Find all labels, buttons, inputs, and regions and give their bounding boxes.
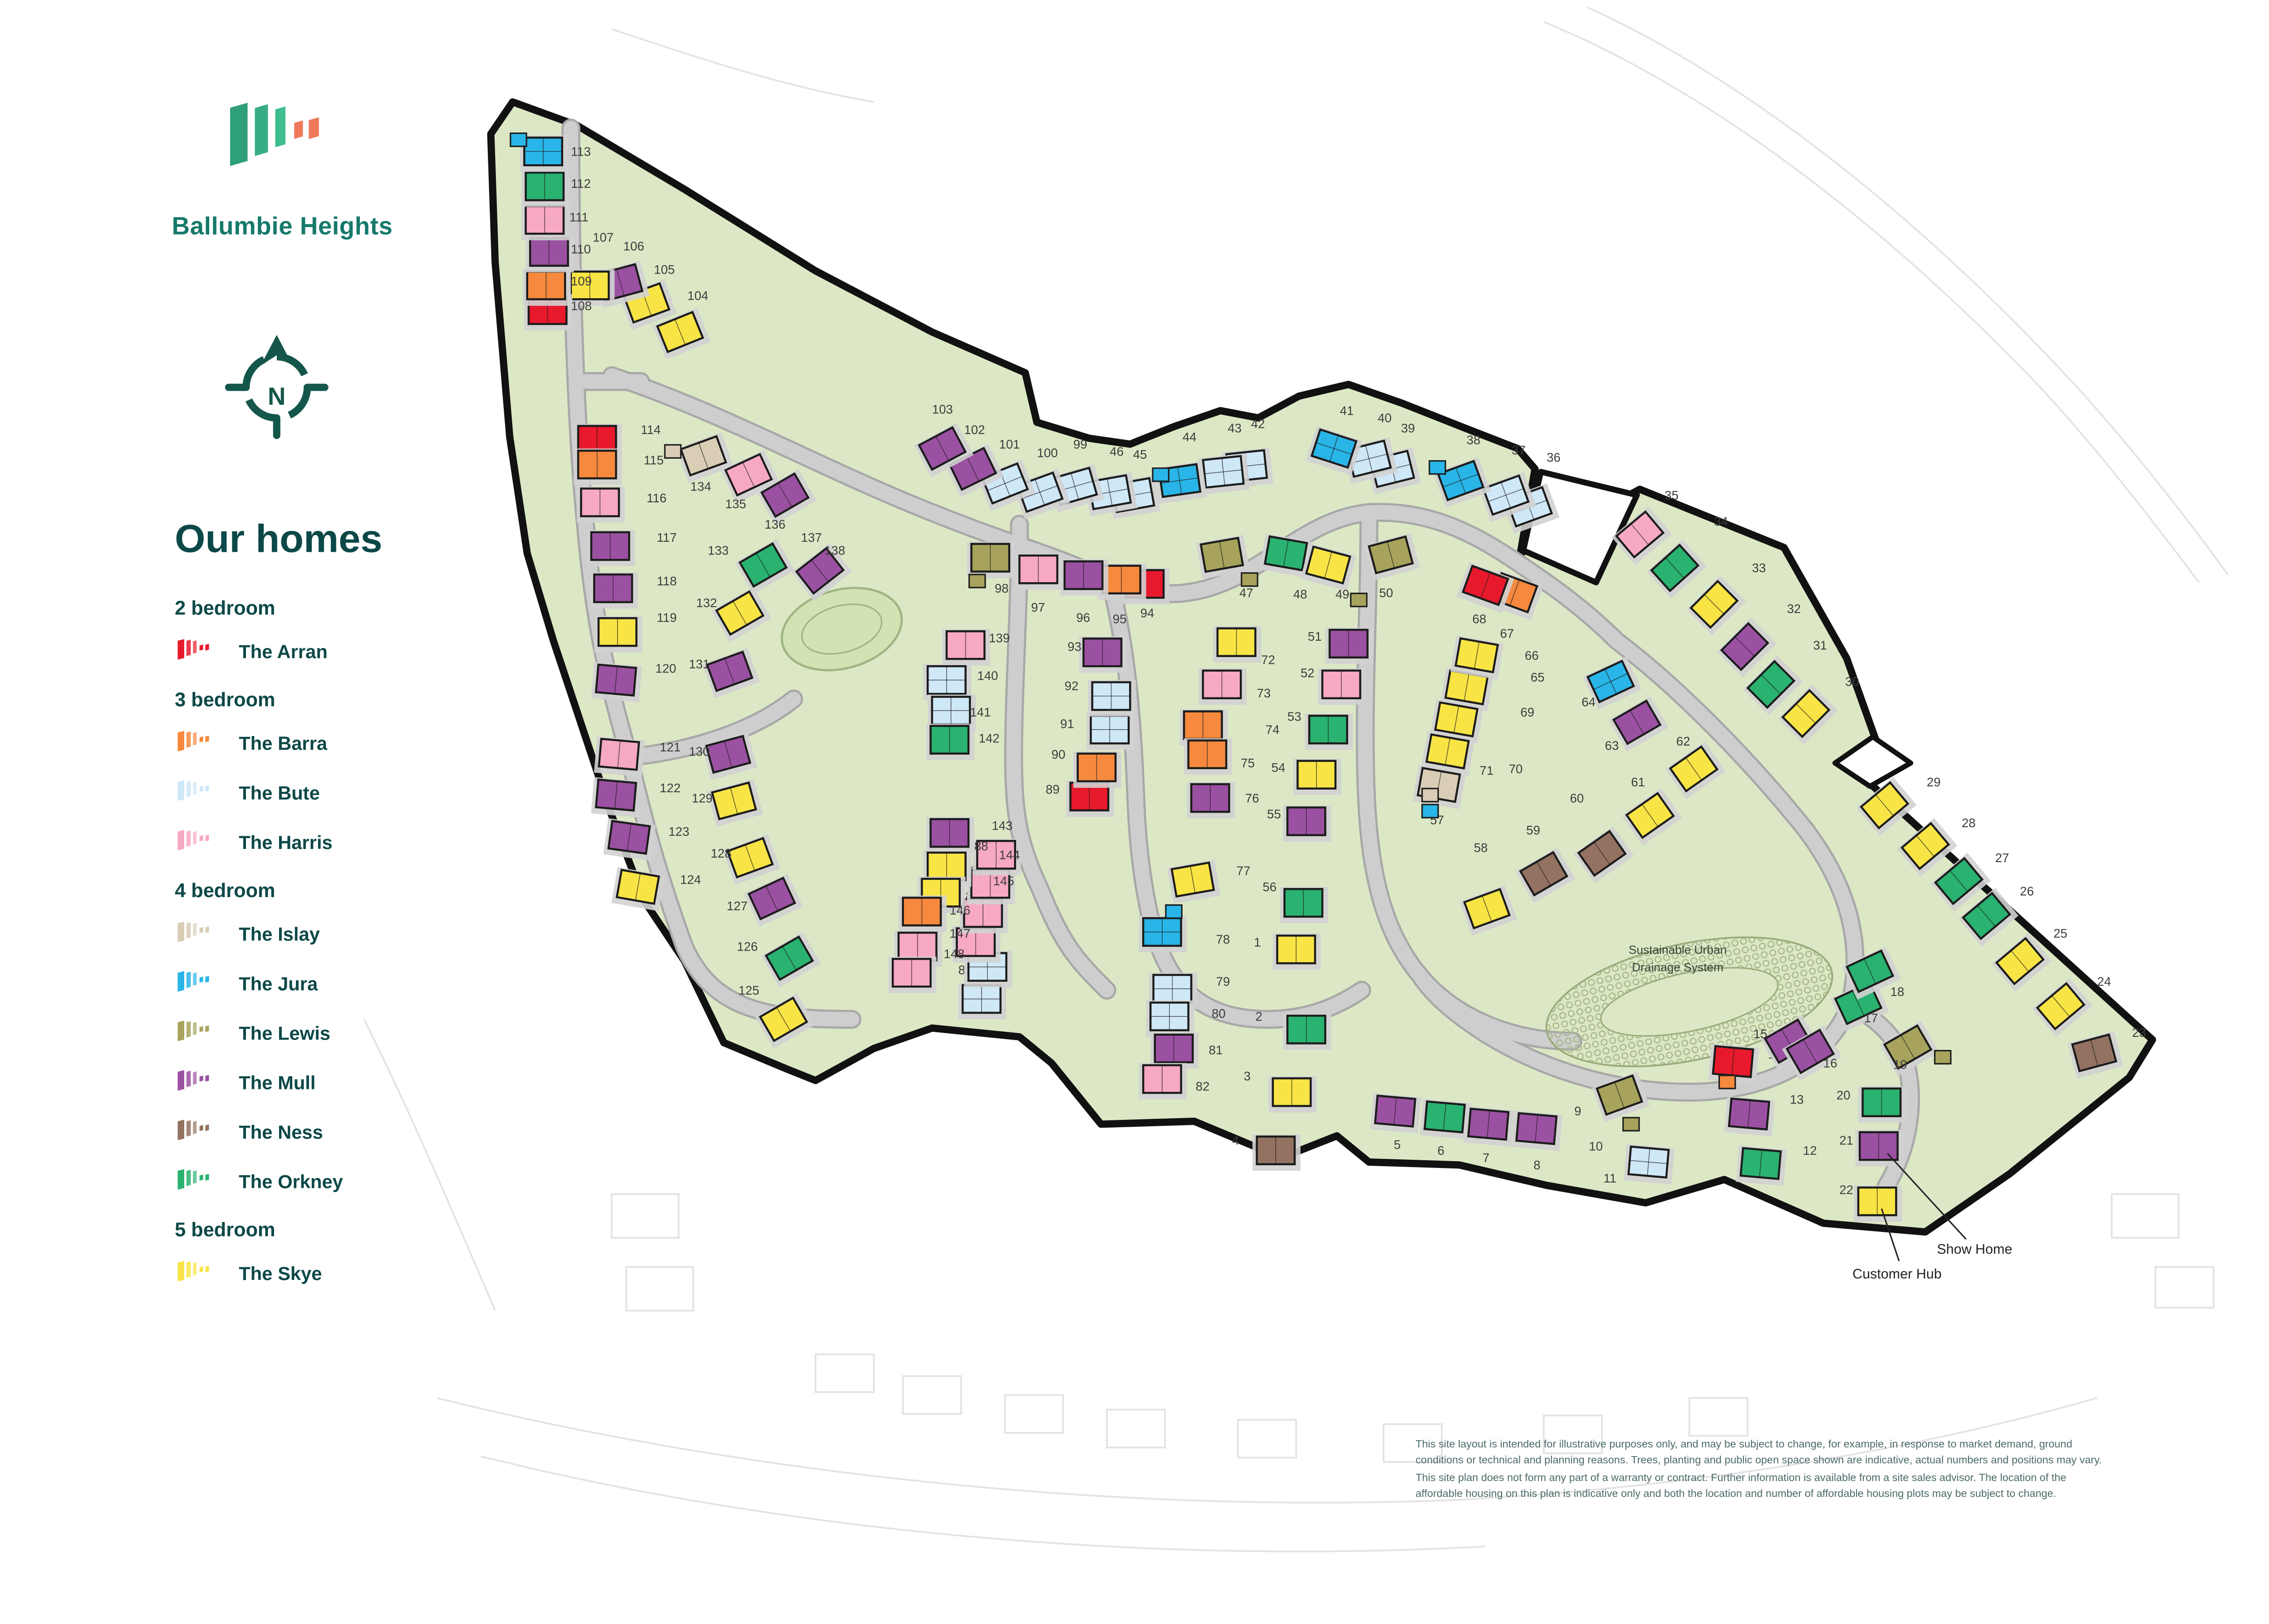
plot-number-4: 4 (1232, 1133, 1239, 1147)
home-type-label: The Orkney (239, 1170, 343, 1192)
plot-number-24: 24 (2097, 975, 2111, 989)
plot-number-145: 145 (993, 874, 1014, 888)
plot-number-78: 78 (1216, 932, 1230, 947)
plot-number-97: 97 (1031, 600, 1045, 614)
plot-number-147: 147 (949, 927, 970, 941)
plot-number-53: 53 (1287, 710, 1301, 724)
site-plan-page: 1234567891011121314151617181920212223242… (0, 0, 2269, 1624)
plot-number-115: 115 (643, 453, 663, 467)
plot-number-25: 25 (2053, 927, 2068, 941)
plot-number-110: 110 (571, 242, 591, 256)
plot-number-9: 9 (1574, 1104, 1581, 1118)
plot-number-90: 90 (1051, 747, 1066, 761)
plot-10[interactable]: 10 (1589, 1139, 1603, 1153)
plot-number-45: 45 (1133, 447, 1147, 461)
plot-number-48: 48 (1293, 587, 1307, 601)
home-type-label: The Islay (239, 922, 320, 944)
plot-number-120: 120 (655, 662, 676, 676)
plot-number-79: 79 (1216, 975, 1230, 989)
brand-name: Ballumbie Heights (172, 213, 463, 242)
plot-number-20: 20 (1837, 1088, 1851, 1102)
plot-number-104: 104 (688, 289, 708, 303)
plot-number-18: 18 (1891, 985, 1905, 999)
plot-number-141: 141 (970, 705, 991, 719)
plot-number-55: 55 (1267, 807, 1281, 821)
svg-text:N: N (268, 383, 285, 410)
home-type-label: The Skye (239, 1262, 322, 1284)
legend-item-skye[interactable]: The Skye (175, 1255, 495, 1290)
plot-number-133: 133 (708, 544, 729, 558)
home-type-icon (175, 1255, 218, 1290)
plot-number-109: 109 (571, 274, 592, 288)
plot-number-119: 119 (657, 610, 677, 624)
plot-number-15: 15 (1753, 1027, 1768, 1041)
plot-number-88: 88 (974, 839, 988, 853)
plot-number-44: 44 (1183, 430, 1197, 444)
plot-number-6: 6 (1437, 1143, 1444, 1158)
plot-number-47: 47 (1239, 586, 1253, 600)
plot-number-125: 125 (738, 983, 759, 997)
plot-number-140: 140 (977, 669, 998, 683)
home-type-label: The Barra (239, 732, 327, 754)
plot-number-60: 60 (1570, 791, 1584, 805)
plot-number-114: 114 (641, 422, 661, 437)
plot-number-43: 43 (1228, 421, 1242, 435)
plot-number-16: 16 (1823, 1056, 1837, 1070)
home-type-icon (175, 633, 218, 668)
plot-number-37: 37 (1512, 443, 1526, 457)
plot-number-35: 35 (1665, 488, 1679, 502)
plot-number-107: 107 (593, 231, 614, 245)
plot-number-142: 142 (979, 731, 1000, 746)
legend-item-barra[interactable]: The Barra (175, 725, 495, 760)
plot-number-127: 127 (727, 899, 747, 913)
legend-section-3-bedroom: 3 bedroom (175, 689, 495, 711)
plot-number-42: 42 (1251, 417, 1265, 431)
plot-number-34: 34 (1714, 515, 1728, 529)
plot-number-39: 39 (1401, 421, 1415, 435)
plot-number-93: 93 (1067, 640, 1081, 654)
plot-number-27: 27 (1995, 851, 2009, 865)
plot-number-32: 32 (1787, 602, 1801, 616)
home-type-icon (175, 824, 218, 859)
legend-section-4-bedroom: 4 bedroom (175, 879, 495, 901)
plot-number-76: 76 (1245, 791, 1259, 805)
home-type-icon (175, 1163, 218, 1198)
plot-number-31: 31 (1813, 638, 1827, 652)
plot-number-61: 61 (1631, 775, 1645, 789)
plot-number-132: 132 (696, 596, 717, 610)
home-type-icon (175, 775, 218, 810)
plot-number-80: 80 (1212, 1006, 1226, 1021)
plot-number-8: 8 (1533, 1158, 1540, 1172)
plot-number-3: 3 (1244, 1069, 1251, 1083)
plot-number-91: 91 (1060, 717, 1074, 731)
plot-number-94: 94 (1140, 606, 1154, 620)
home-type-label: The Harris (239, 831, 332, 853)
legend-item-mull[interactable]: The Mull (175, 1065, 495, 1099)
legend-section-2-bedroom: 2 bedroom (175, 597, 495, 619)
plot-number-136: 136 (765, 517, 786, 531)
plot-number-108: 108 (571, 299, 592, 313)
plot-number-30: 30 (1845, 675, 1859, 689)
plot-number-75: 75 (1241, 756, 1255, 770)
plot-number-96: 96 (1076, 610, 1090, 624)
plot-number-21: 21 (1839, 1133, 1853, 1147)
legend: 2 bedroom The Arran3 bedroom The Barra T… (175, 577, 495, 1305)
plot-number-148: 148 (944, 947, 965, 961)
aux-structure-lewis (1623, 1118, 1639, 1131)
legend-item-orkney[interactable]: The Orkney (175, 1163, 495, 1198)
plot-number-103: 103 (932, 402, 953, 416)
plot-number-38: 38 (1467, 433, 1481, 447)
aux-structure-islay (665, 445, 681, 458)
plot-number-28: 28 (1962, 816, 1976, 830)
plot-number-19: 19 (1893, 1058, 1907, 1072)
plot-number-54: 54 (1272, 760, 1286, 775)
plot-number-2: 2 (1255, 1010, 1262, 1024)
plot-number-146: 146 (949, 903, 970, 917)
plot-number-17: 17 (1864, 1011, 1878, 1025)
aux-structure-jura (511, 133, 526, 147)
aux-structure-jura (1166, 905, 1182, 918)
plot-number-65: 65 (1531, 670, 1545, 684)
plot-number-69: 69 (1520, 705, 1534, 719)
plot-number-82: 82 (1196, 1079, 1210, 1094)
plot-number-67: 67 (1500, 627, 1514, 641)
plot-number-121: 121 (660, 740, 681, 754)
home-type-icon (175, 1015, 218, 1050)
plot-number-124: 124 (680, 873, 701, 887)
plot-number-63: 63 (1605, 739, 1619, 753)
aux-structure-lewis (1935, 1050, 1950, 1064)
plot-number-22: 22 (1839, 1183, 1853, 1197)
home-type-label: The Arran (239, 640, 328, 662)
legend-title: Our homes (175, 517, 382, 562)
plot-number-59: 59 (1526, 823, 1540, 837)
plot-number-26: 26 (2020, 884, 2034, 898)
plot-number-71: 71 (1480, 763, 1494, 777)
plot-number-131: 131 (689, 657, 710, 671)
plot-number-11: 11 (1603, 1171, 1616, 1185)
plot-number-102: 102 (964, 422, 985, 437)
plot-number-36: 36 (1547, 450, 1561, 464)
legend-item-lewis[interactable]: The Lewis (175, 1015, 495, 1050)
plot-number-137: 137 (801, 530, 822, 545)
plot-number-51: 51 (1308, 629, 1322, 643)
plot-number-111: 111 (570, 210, 589, 224)
home-type-label: The Mull (239, 1071, 315, 1093)
home-type-icon (175, 1065, 218, 1099)
plot-number-12: 12 (1803, 1143, 1817, 1158)
suds-label-line1: Sustainable Urban (1629, 943, 1727, 957)
plot-number-92: 92 (1065, 679, 1079, 693)
plot-number-130: 130 (689, 745, 710, 759)
aux-structure-lewis (969, 574, 985, 588)
plot-number-1: 1 (1254, 935, 1261, 949)
plot-number-64: 64 (1581, 695, 1596, 709)
plot-number-129: 129 (692, 791, 712, 805)
plot-number-68: 68 (1473, 612, 1487, 626)
plot-number-134: 134 (690, 480, 711, 494)
plot-number-77: 77 (1237, 864, 1251, 878)
suds-label-line2: Drainage System (1632, 961, 1724, 974)
plot-number-100: 100 (1037, 446, 1058, 460)
plot-137[interactable]: 137 (801, 530, 822, 545)
plot-number-29: 29 (1927, 775, 1941, 789)
plot-number-33: 33 (1752, 561, 1766, 575)
home-type-label: The Ness (239, 1120, 323, 1142)
plot-number-81: 81 (1209, 1043, 1223, 1057)
home-type-label: The Lewis (239, 1021, 330, 1043)
show-home-label: Show Home (1937, 1241, 2012, 1257)
plot-number-89: 89 (1046, 782, 1060, 796)
plot-number-128: 128 (711, 846, 732, 860)
plot-number-5: 5 (1394, 1138, 1400, 1152)
legend-item-islay[interactable]: The Islay (175, 916, 495, 951)
brand-logo (204, 84, 364, 207)
plot-number-123: 123 (668, 824, 689, 839)
plot-number-113: 113 (571, 144, 591, 158)
plot-number-112: 112 (571, 177, 591, 191)
plot-number-62: 62 (1676, 734, 1690, 748)
plot-number-7: 7 (1483, 1151, 1489, 1165)
plot-number-66: 66 (1525, 648, 1539, 662)
plot-number-126: 126 (737, 940, 758, 954)
plot-number-135: 135 (725, 497, 746, 511)
plot-number-52: 52 (1301, 666, 1315, 680)
plot-number-95: 95 (1113, 612, 1127, 626)
aux-structure-jura (1422, 805, 1438, 818)
plot-number-105: 105 (654, 262, 675, 276)
plot-number-56: 56 (1262, 880, 1277, 894)
plot-number-10: 10 (1589, 1139, 1603, 1153)
aux-structure-jura (1153, 468, 1169, 481)
north-compass-icon: N (218, 329, 335, 446)
plot-number-58: 58 (1474, 840, 1488, 854)
aux-structure-jura (1429, 461, 1445, 474)
plot-number-116: 116 (647, 491, 667, 505)
home-type-label: The Jura (239, 972, 318, 994)
plot-number-144: 144 (999, 848, 1020, 862)
plot-number-122: 122 (660, 781, 681, 795)
home-type-icon (175, 725, 218, 760)
aux-structure-islay (1422, 789, 1438, 802)
plot-number-99: 99 (1073, 437, 1087, 451)
plot-number-138: 138 (824, 544, 845, 558)
aux-structure-lewis (1242, 573, 1257, 586)
plot-number-13: 13 (1790, 1093, 1804, 1107)
home-type-icon (175, 1114, 218, 1149)
customer-hub-label: Customer Hub (1852, 1266, 1941, 1282)
home-type-label: The Bute (239, 781, 320, 803)
legend-item-harris[interactable]: The Harris (175, 824, 495, 859)
legend-item-ness[interactable]: The Ness (175, 1114, 495, 1149)
legend-item-jura[interactable]: The Jura (175, 966, 495, 1001)
plot-number-49: 49 (1336, 587, 1350, 601)
disclaimer-text: This site layout is intended for illustr… (1415, 1436, 2109, 1501)
plot-number-98: 98 (995, 581, 1009, 595)
plot-number-23: 23 (2132, 1025, 2146, 1040)
plot-number-106: 106 (624, 239, 644, 253)
legend-section-5-bedroom: 5 bedroom (175, 1219, 495, 1241)
home-type-icon (175, 916, 218, 951)
plot-number-101: 101 (999, 437, 1020, 451)
aux-structure-barra (1719, 1075, 1735, 1089)
legend-item-bute[interactable]: The Bute (175, 775, 495, 810)
plot-number-74: 74 (1266, 722, 1280, 736)
plot-number-72: 72 (1261, 653, 1275, 667)
plot-number-117: 117 (657, 530, 677, 545)
plot-number-73: 73 (1257, 686, 1271, 700)
plot-number-50: 50 (1379, 586, 1393, 600)
plot-number-118: 118 (657, 574, 677, 588)
aux-structure-lewis (1351, 594, 1367, 607)
plot-number-41: 41 (1340, 404, 1354, 418)
plot-number-46: 46 (1110, 444, 1124, 458)
plot-number-70: 70 (1509, 762, 1523, 776)
plot-number-139: 139 (989, 631, 1010, 645)
plot-number-143: 143 (992, 819, 1012, 833)
legend-item-arran[interactable]: The Arran (175, 633, 495, 668)
plot-number-40: 40 (1378, 411, 1392, 425)
home-type-icon (175, 966, 218, 1001)
